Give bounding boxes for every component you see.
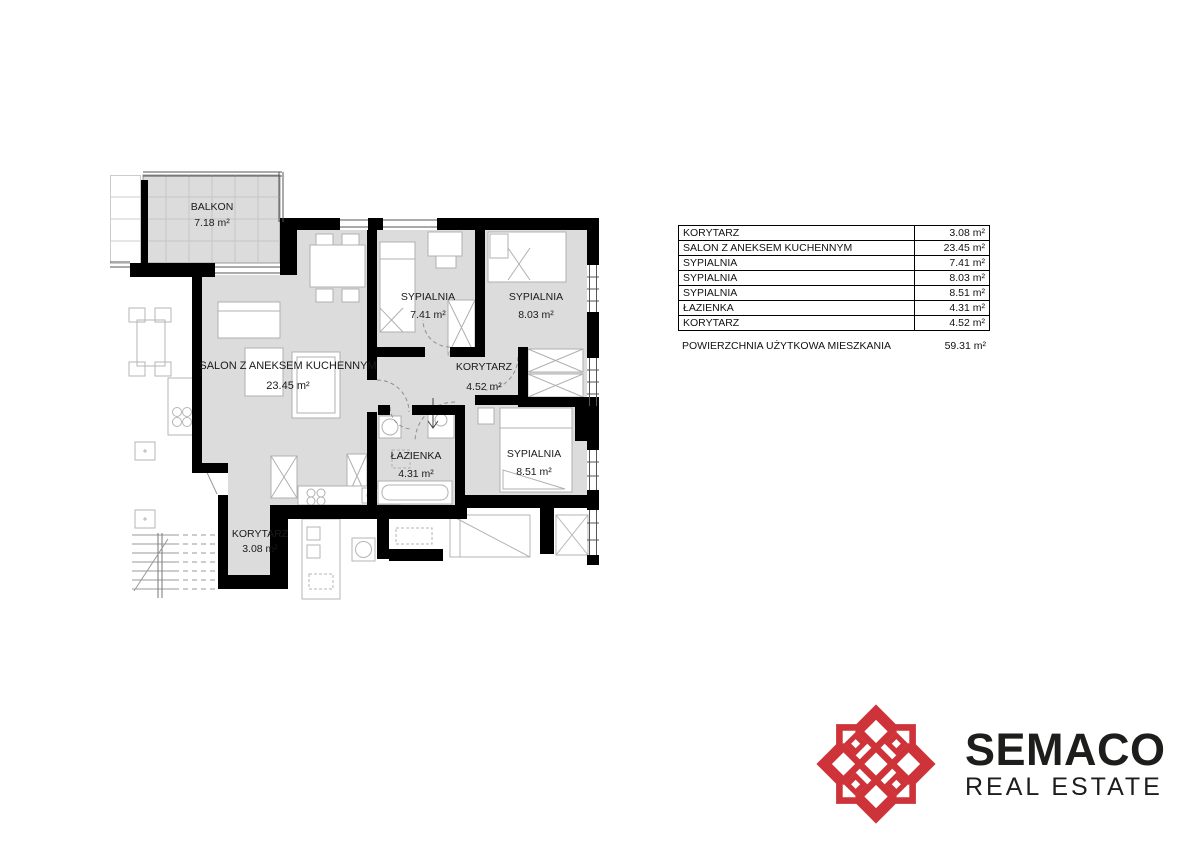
table-row: ŁAZIENKA 4.31 m²: [679, 301, 990, 316]
total-area-value: 59.31 m²: [945, 339, 990, 353]
room-area-cell: 4.52 m²: [915, 316, 990, 331]
sofa: [218, 302, 280, 338]
label-sypialnia1: SYPIALNIA: [401, 291, 455, 303]
room-name-cell: SYPIALNIA: [679, 271, 915, 286]
room-name-cell: KORYTARZ: [679, 316, 915, 331]
label-korytarz1: KORYTARZ: [456, 361, 513, 373]
nightstand: [478, 408, 494, 424]
room-area-cell: 3.08 m²: [915, 226, 990, 241]
staircase: [132, 533, 216, 598]
table-row: KORYTARZ 4.52 m²: [679, 316, 990, 331]
room-name-cell: ŁAZIENKA: [679, 301, 915, 316]
label-salon-area: 23.45 m²: [266, 380, 310, 392]
total-area-row: POWIERZCHNIA UŻYTKOWA MIESZKANIA 59.31 m…: [678, 339, 990, 353]
bathtub: [378, 481, 452, 504]
label-korytarz2-area: 3.08 m²: [242, 543, 278, 555]
room-name-cell: SYPIALNIA: [679, 286, 915, 301]
room-area-table: KORYTARZ 3.08 m² SALON Z ANEKSEM KUCHENN…: [678, 225, 990, 331]
label-lazienka: ŁAZIENKA: [391, 450, 442, 462]
label-korytarz1-area: 4.52 m²: [466, 381, 502, 393]
shelf-1: [428, 232, 462, 256]
label-balkon: BALKON: [191, 201, 234, 213]
wardrobe-1: [448, 300, 475, 355]
logo-tagline: REAL ESTATE: [965, 774, 1166, 801]
label-sypialnia3-area: 8.51 m²: [516, 466, 552, 478]
bed-2: [488, 232, 566, 282]
room-name-cell: KORYTARZ: [679, 226, 915, 241]
company-logo: SEMACO REAL ESTATE: [815, 703, 1166, 825]
total-area-label: POWIERZCHNIA UŻYTKOWA MIESZKANIA: [678, 339, 891, 353]
logo-text-block: SEMACO REAL ESTATE: [965, 727, 1166, 801]
room-name-cell: SALON Z ANEKSEM KUCHENNYM: [679, 241, 915, 256]
room-area-cell: 23.45 m²: [915, 241, 990, 256]
label-sypialnia1-area: 7.41 m²: [410, 309, 446, 321]
table-row: SALON Z ANEKSEM KUCHENNYM 23.45 m²: [679, 241, 990, 256]
floor-plan: BALKON 7.18 m² SALON Z ANEKSEM KUCHENNYM…: [110, 150, 630, 620]
table-row: SYPIALNIA 8.03 m²: [679, 271, 990, 286]
room-name-cell: SYPIALNIA: [679, 256, 915, 271]
label-balkon-area: 7.18 m²: [194, 217, 230, 229]
label-sypialnia2-area: 8.03 m²: [518, 309, 554, 321]
label-sypialnia2: SYPIALNIA: [509, 291, 563, 303]
room-area-cell: 8.51 m²: [915, 286, 990, 301]
room-area-cell: 7.41 m²: [915, 256, 990, 271]
shelf-2: [436, 256, 456, 268]
washing-machine: [379, 416, 401, 438]
label-salon: SALON Z ANEKSEM KUCHENNYM: [199, 360, 376, 372]
label-korytarz2: KORYTARZ: [232, 528, 289, 540]
logo-wordmark: SEMACO: [965, 727, 1166, 773]
semaco-logo-icon: [815, 703, 937, 825]
cabinet: [271, 456, 297, 498]
label-sypialnia3: SYPIALNIA: [507, 448, 561, 460]
label-lazienka-area: 4.31 m²: [398, 468, 434, 480]
table-row: SYPIALNIA 7.41 m²: [679, 256, 990, 271]
room-area-cell: 4.31 m²: [915, 301, 990, 316]
table-row: SYPIALNIA 8.51 m²: [679, 286, 990, 301]
neighbor-dining-set: [129, 308, 171, 376]
room-area-cell: 8.03 m²: [915, 271, 990, 286]
table-row: KORYTARZ 3.08 m²: [679, 226, 990, 241]
floor-plan-svg: BALKON 7.18 m² SALON Z ANEKSEM KUCHENNYM…: [110, 150, 630, 620]
